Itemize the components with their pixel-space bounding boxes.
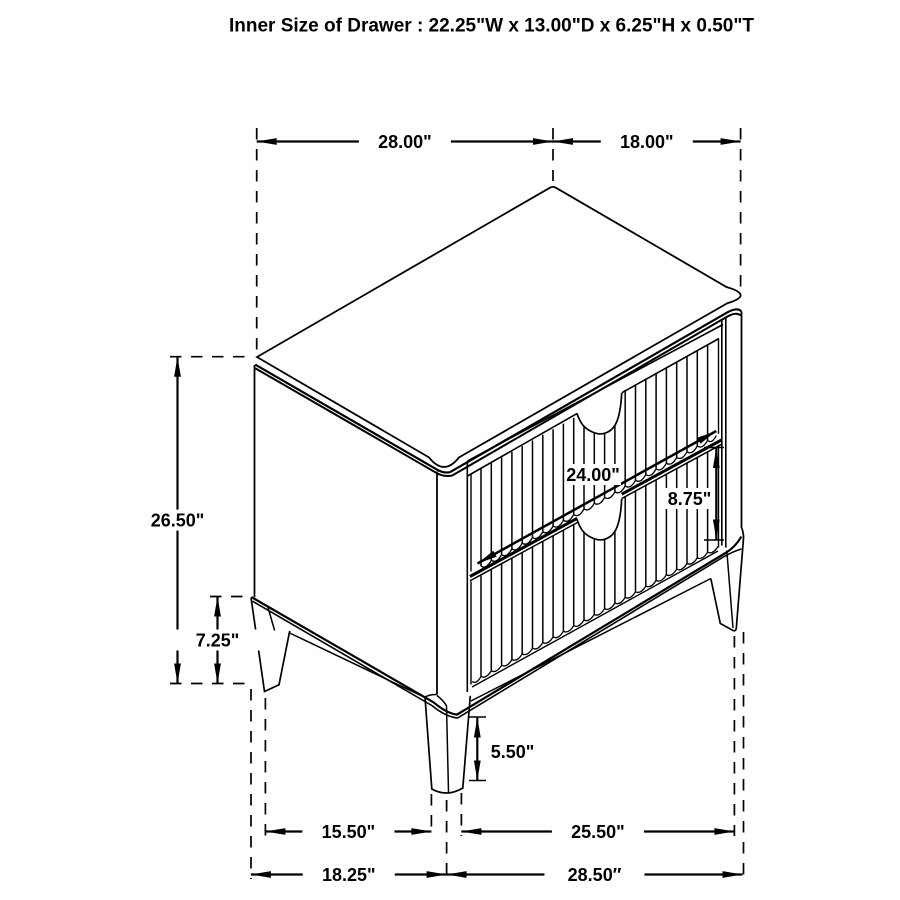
svg-text:18.25": 18.25" <box>322 865 376 885</box>
svg-text:18.00": 18.00" <box>620 132 674 152</box>
svg-text:15.50": 15.50" <box>322 822 376 842</box>
svg-text:28.50″: 28.50″ <box>568 865 622 885</box>
svg-text:5.50": 5.50" <box>491 742 535 762</box>
svg-text:7.25": 7.25" <box>196 630 240 650</box>
svg-text:25.50": 25.50" <box>571 822 625 842</box>
svg-text:28.00": 28.00" <box>378 132 432 152</box>
svg-text:8.75": 8.75" <box>668 489 712 509</box>
svg-text:26.50": 26.50" <box>151 510 205 530</box>
svg-text:24.00": 24.00" <box>566 465 620 485</box>
svg-text:Inner Size of Drawer : 22.25"W: Inner Size of Drawer : 22.25"W x 13.00"D… <box>229 16 754 37</box>
